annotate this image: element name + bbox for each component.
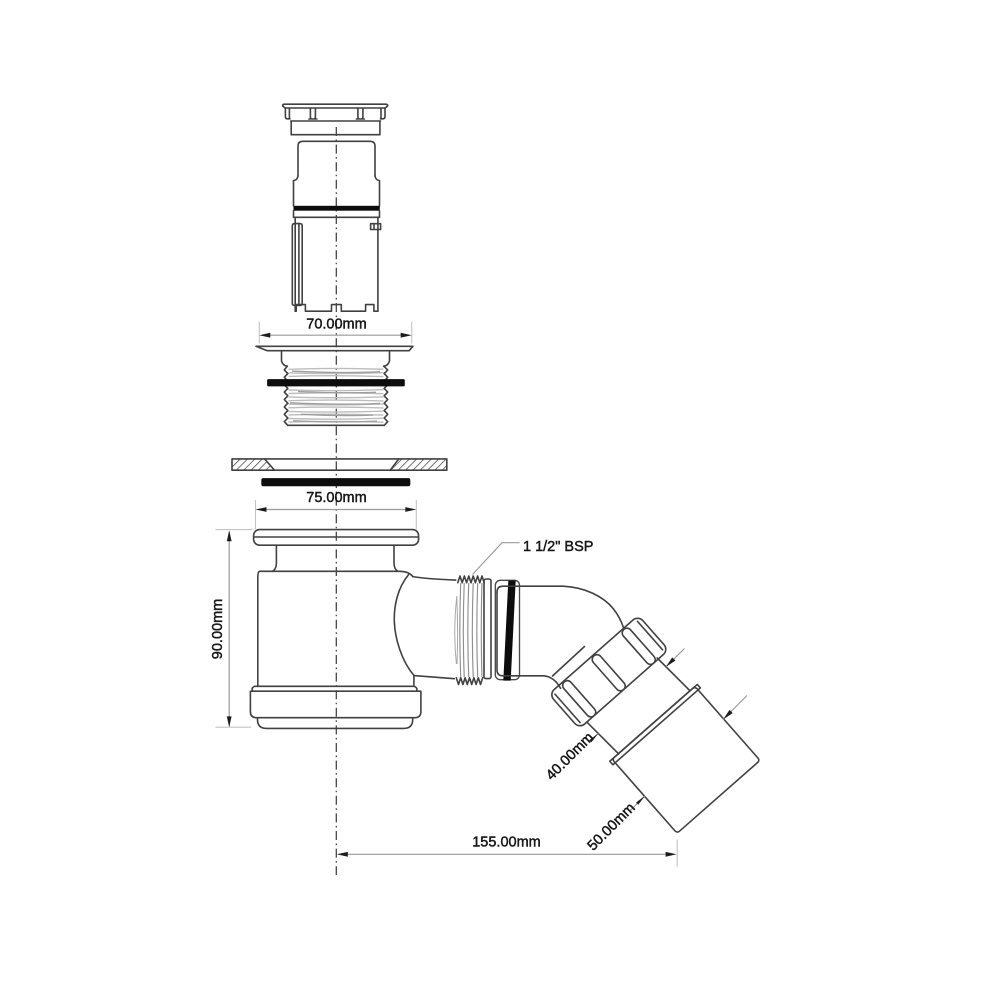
svg-text:1 1/2" BSP: 1 1/2" BSP xyxy=(523,539,593,555)
svg-text:70.00mm: 70.00mm xyxy=(306,316,366,332)
svg-text:90.00mm: 90.00mm xyxy=(210,599,226,659)
svg-text:75.00mm: 75.00mm xyxy=(306,490,366,506)
svg-text:155.00mm: 155.00mm xyxy=(472,834,541,850)
